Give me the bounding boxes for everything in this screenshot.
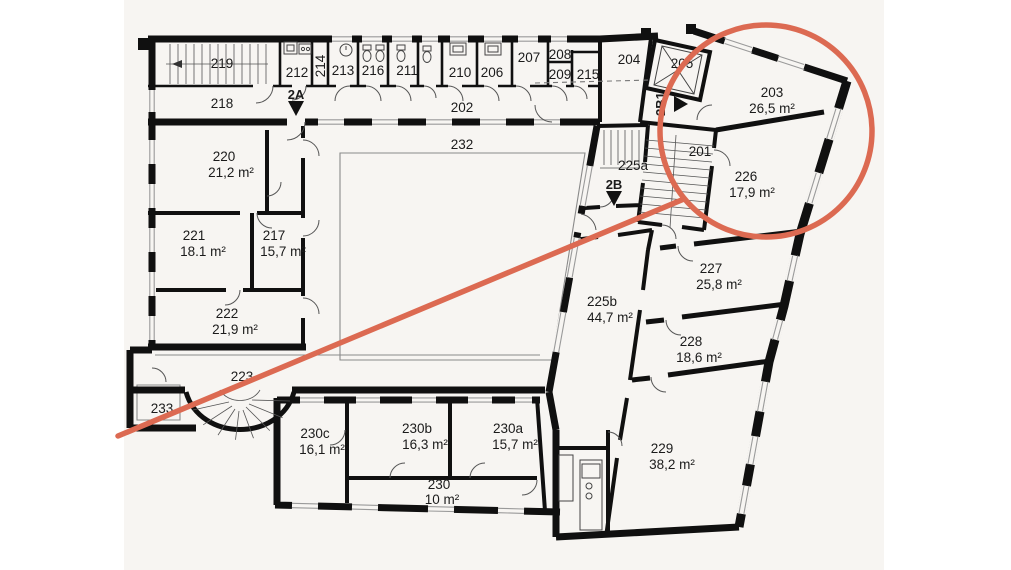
room-230b-area: 16,3 m² [402,437,448,452]
floor-plan-canvas: 219 218 212 214 213 216 211 210 206 207 … [0,0,1011,570]
room-220-area: 21,2 m² [208,165,254,180]
room-212-label: 212 [286,65,309,80]
room-203-area: 26,5 m² [749,101,795,116]
room-209-label: 209 [549,67,572,82]
room-230c-area: 16,1 m² [299,442,345,457]
room-230c-label: 230c [300,426,330,441]
room-219-label: 219 [211,56,234,71]
room-208-label: 208 [549,47,572,62]
room-203-label: 203 [761,85,784,100]
room-226-area: 17,9 m² [729,185,775,200]
room-204-label: 204 [618,52,641,67]
room-228-label: 228 [680,334,703,349]
wall-pillar [641,28,651,38]
floor-plan: 219 218 212 214 213 216 211 210 206 207 … [0,0,1011,570]
room-230a-label: 230a [493,421,524,436]
room-207-label: 207 [518,50,541,65]
room-225b-area: 44,7 m² [587,310,633,325]
room-215-label: 215 [577,67,600,82]
room-230a-area: 15,7 m² [492,437,538,452]
marker-2a-label: 2A [288,87,305,102]
room-229-area: 38,2 m² [649,457,695,472]
room-201-label: 201 [689,144,712,159]
room-221-label: 221 [183,228,206,243]
room-221-area: 18.1 m² [180,244,226,259]
room-210-label: 210 [449,65,472,80]
room-213-label: 213 [332,63,355,78]
wall-pillar [138,38,150,50]
room-218-label: 218 [211,96,234,111]
room-211-label: 211 [396,63,418,78]
room-214-label: 214 [313,54,328,77]
room-230-area: 10 m² [425,492,460,507]
room-220-label: 220 [213,149,236,164]
room-229-label: 229 [651,441,674,456]
room-225b-label: 225b [587,294,617,309]
room-226-label: 226 [735,169,758,184]
room-230b-label: 230b [402,421,432,436]
room-202-label: 202 [451,100,474,115]
room-216-label: 216 [362,63,385,78]
room-217-label: 217 [263,228,286,243]
room-232-label: 232 [451,137,474,152]
room-222-label: 222 [216,306,239,321]
room-217-area: 15,7 m² [260,244,306,259]
room-228-area: 18,6 m² [676,350,722,365]
room-206-label: 206 [481,65,504,80]
room-227-label: 227 [700,261,723,276]
room-227-area: 25,8 m² [696,277,742,292]
room-222-area: 21,9 m² [212,322,258,337]
marker-2b-label: 2B [606,177,623,192]
wall-pillar [686,24,696,34]
room-225a-label: 225a [618,158,649,173]
room-230-label: 230 [428,477,451,492]
